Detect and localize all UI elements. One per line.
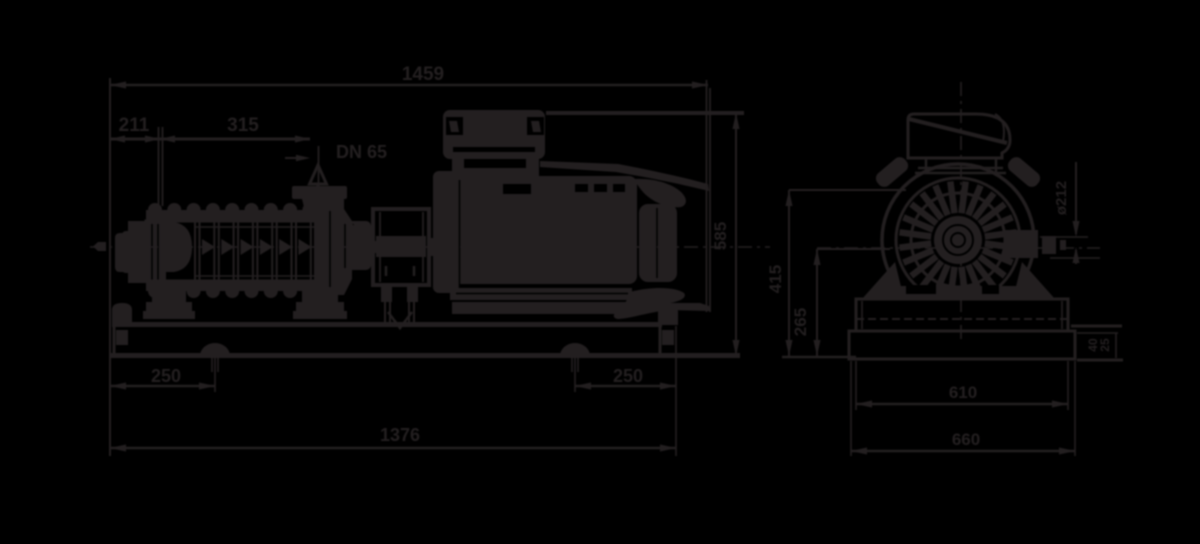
svg-text:211: 211 — [119, 115, 150, 136]
svg-text:1376: 1376 — [380, 425, 420, 445]
svg-text:315: 315 — [227, 115, 259, 136]
svg-text:660: 660 — [952, 430, 980, 449]
svg-text:265: 265 — [791, 308, 810, 336]
svg-text:585: 585 — [711, 222, 730, 250]
svg-text:25: 25 — [1098, 338, 1112, 352]
svg-text:ø212: ø212 — [1053, 181, 1070, 215]
svg-text:1459: 1459 — [402, 64, 444, 85]
svg-text:415: 415 — [766, 265, 785, 293]
svg-text:610: 610 — [949, 383, 977, 402]
svg-text:250: 250 — [151, 366, 181, 386]
svg-text:250: 250 — [613, 366, 643, 386]
svg-text:DN 65: DN 65 — [336, 142, 387, 162]
